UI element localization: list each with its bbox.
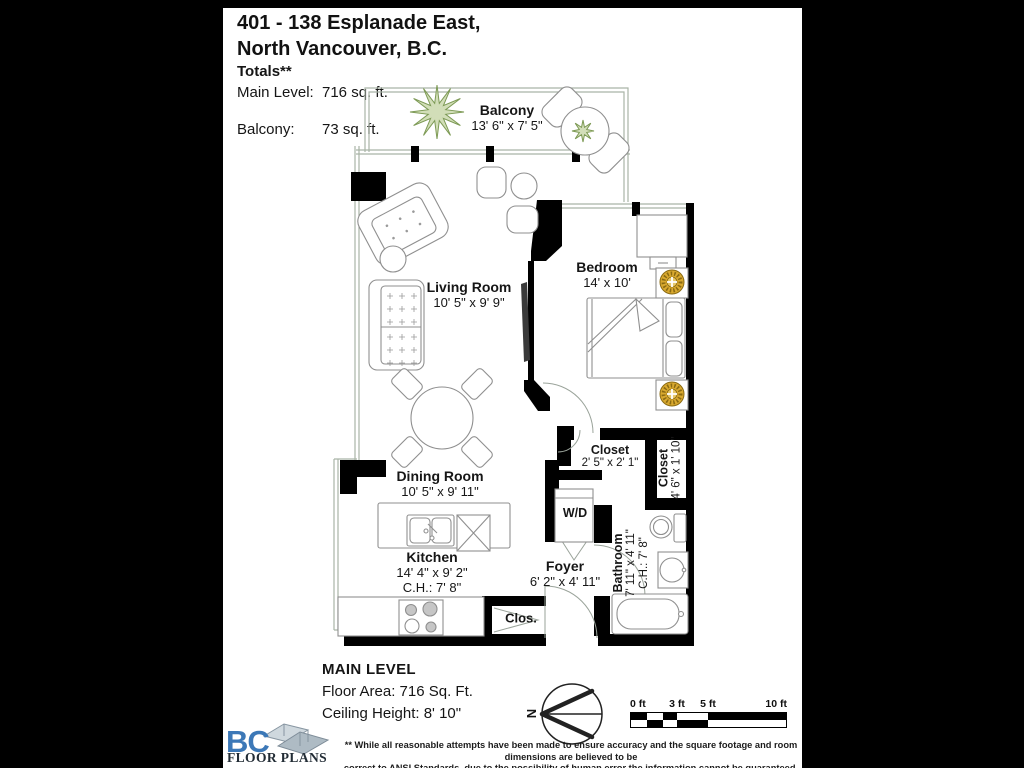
scale-tick-10: 10 ft: [765, 698, 787, 710]
ottoman-round: [511, 173, 537, 199]
bathtub: [612, 594, 688, 634]
room-label-living: Living Room 10' 5" x 9' 9": [427, 279, 512, 310]
scale-labels: 0 ft 3 ft 5 ft 10 ft: [630, 698, 787, 710]
scale-tick-5: 5 ft: [700, 698, 716, 710]
scale-bar-blocks: [630, 712, 787, 728]
room-label-closet-vertical: Closet 4' 6" x 1' 10": [657, 436, 684, 499]
ottoman: [477, 167, 506, 198]
compass-icon: [542, 684, 602, 744]
room-label-kitchen: Kitchen 14' 4" x 9' 2" C.H.: 7' 8": [396, 549, 467, 595]
sofa: [369, 280, 424, 370]
main-level-heading: MAIN LEVEL: [322, 661, 416, 678]
floor-area-text: Floor Area: 716 Sq. Ft.: [322, 683, 473, 700]
bedroom-desk: [637, 215, 687, 269]
room-label-closet: Closet 2' 5" x 2' 1": [582, 443, 639, 470]
scale-bar: 0 ft 3 ft 5 ft 10 ft: [630, 698, 787, 728]
scale-tick-0: 0 ft: [630, 698, 646, 710]
toilet: [650, 514, 686, 542]
floorplan-page: 401 - 138 Esplanade East, North Vancouve…: [0, 0, 1024, 768]
bed: [587, 298, 685, 378]
kitchen-island: [378, 503, 510, 551]
room-label-bathroom: Bathroom 7' 11" x 4' 11" C.H.: 7' 8": [611, 529, 651, 597]
bathroom-sink: [658, 552, 688, 588]
ottoman: [507, 206, 538, 233]
stove: [338, 597, 484, 636]
room-label-bedroom: Bedroom 14' x 10': [576, 259, 637, 290]
room-label-dining: Dining Room 10' 5" x 9' 11": [396, 468, 483, 499]
table-plant: [572, 120, 594, 142]
closet-small-label: Clos.: [505, 611, 537, 626]
disclaimer-line2: correct to ANSI Standards, due to the po…: [341, 763, 801, 768]
room-label-foyer: Foyer 6' 2" x 4' 11": [530, 558, 600, 589]
logo-floorplans: FLOOR PLANS: [227, 750, 327, 766]
disclaimer-line1: ** While all reasonable attempts have be…: [341, 740, 801, 763]
ceiling-height-text: Ceiling Height: 8' 10": [322, 705, 461, 722]
disclaimer: ** While all reasonable attempts have be…: [341, 740, 801, 768]
north-label: N: [524, 709, 539, 718]
scale-tick-3: 3 ft: [669, 698, 685, 710]
dining-table: [411, 387, 473, 449]
side-table: [380, 246, 406, 272]
washer-dryer-label: W/D: [563, 506, 587, 520]
room-label-balcony: Balcony 13' 6" x 7' 5": [471, 102, 542, 133]
